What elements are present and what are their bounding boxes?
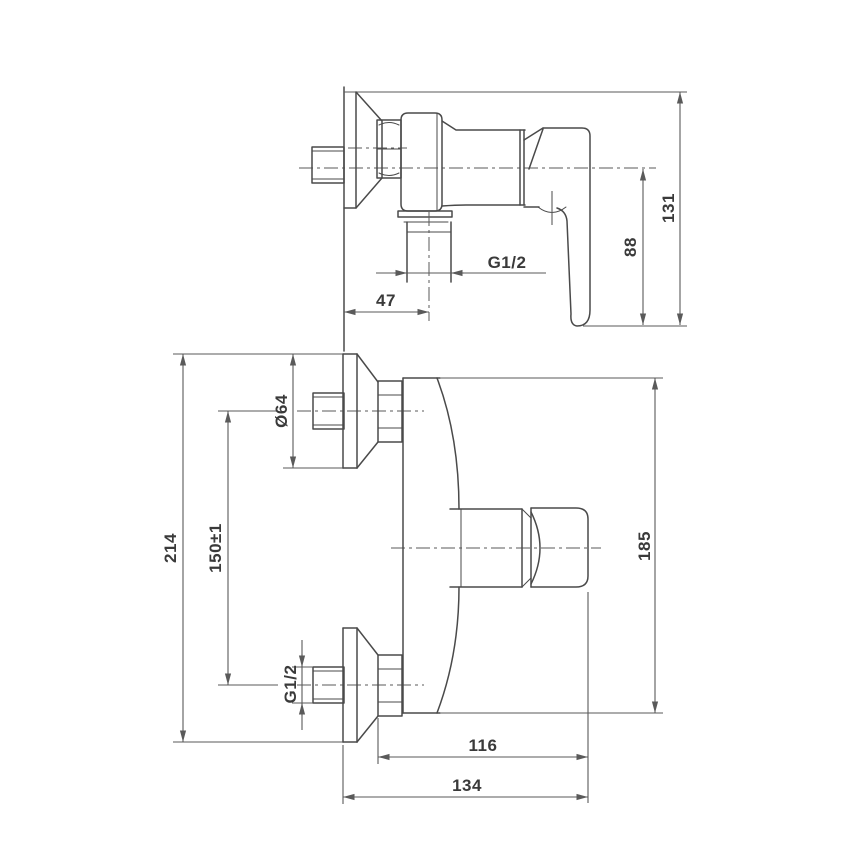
side-view: G1/2 47 88 131 xyxy=(299,87,687,351)
technical-drawing: G1/2 47 88 131 xyxy=(0,0,868,868)
handle-lever-side xyxy=(524,128,590,326)
dim-body-height-label: 185 xyxy=(635,531,654,561)
dim-overall-height-label: 214 xyxy=(161,533,180,563)
dim-wall-offset: 47 xyxy=(344,291,429,312)
dim-inlet-thread-label: G1/2 xyxy=(281,665,300,704)
dim-axis-to-bottom-label: 88 xyxy=(621,237,640,257)
dim-depth-inner-label: 116 xyxy=(469,736,498,755)
dim-centers-distance: 150±1 xyxy=(206,411,278,685)
mixer-body-side xyxy=(442,121,525,206)
hex-nut-side xyxy=(377,120,401,178)
dim-wall-offset-label: 47 xyxy=(376,291,396,310)
cartridge-collar-side xyxy=(520,130,524,205)
dim-depth-overall: 134 xyxy=(343,745,588,804)
dim-centers-distance-label: 150±1 xyxy=(206,523,225,573)
drawing-canvas: G1/2 47 88 131 xyxy=(0,0,868,868)
outlet-pipe-side xyxy=(398,211,452,321)
dim-outlet-thread-label: G1/2 xyxy=(488,253,527,272)
supply-pipe-side xyxy=(312,147,344,183)
dim-depth-inner: 116 xyxy=(378,592,588,803)
dim-escutcheon-diameter: Ø64 xyxy=(272,354,293,468)
dim-overall-height: 214 xyxy=(161,354,183,742)
dim-overall-side-label: 131 xyxy=(659,193,678,223)
dim-escutcheon-diameter-label: Ø64 xyxy=(272,394,291,428)
dim-overall-side: 131 xyxy=(659,92,680,325)
dim-body-height: 185 xyxy=(635,378,655,713)
dim-depth-overall-label: 134 xyxy=(452,776,482,795)
front-view: 214 150±1 Ø64 G1/2 185 xyxy=(161,354,663,804)
dim-axis-to-bottom: 88 xyxy=(621,169,643,325)
valve-housing xyxy=(401,113,442,211)
dim-outlet-thread: G1/2 xyxy=(376,253,546,273)
mixer-body-front xyxy=(403,378,663,713)
